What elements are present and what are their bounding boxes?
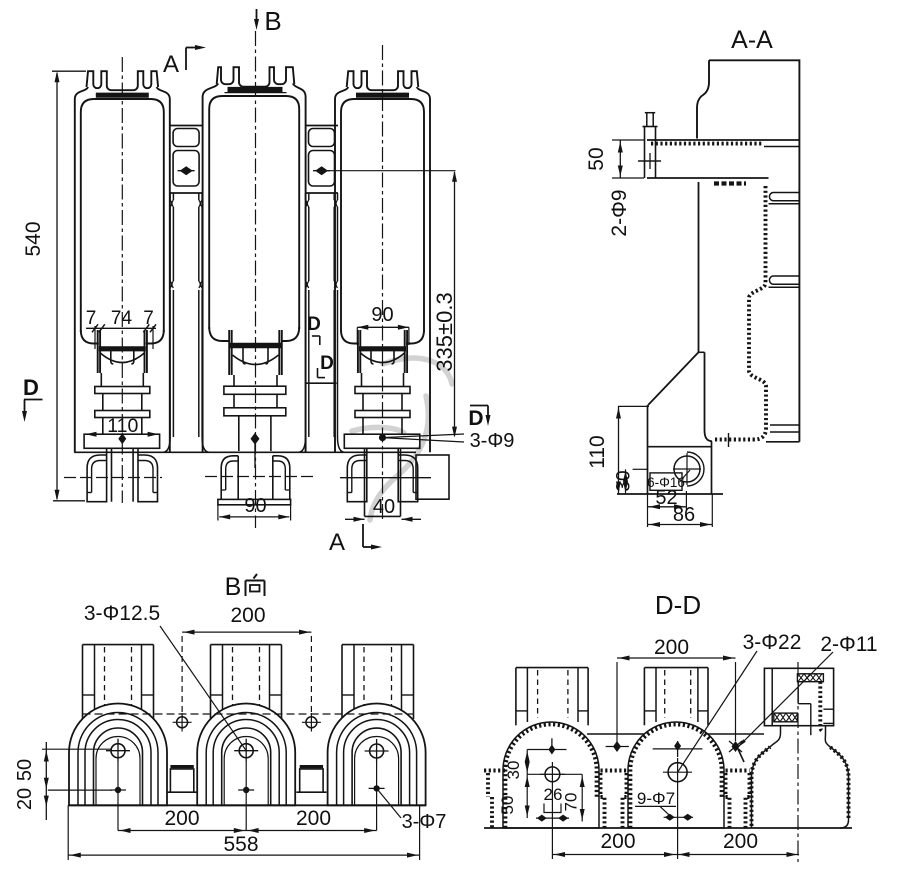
svg-text:335±0.3: 335±0.3 [432,292,457,371]
svg-text:D: D [468,407,483,430]
svg-text:20: 20 [14,788,36,810]
svg-text:30: 30 [504,761,523,780]
svg-text:50: 50 [498,796,517,815]
svg-text:D: D [23,375,39,400]
svg-text:3-Φ7: 3-Φ7 [402,811,447,833]
svg-text:110: 110 [586,435,609,468]
svg-text:50: 50 [14,759,36,781]
svg-text:3-Φ12.5: 3-Φ12.5 [84,602,160,625]
svg-text:200: 200 [723,830,758,853]
svg-text:2-Φ11: 2-Φ11 [820,633,877,656]
svg-text:200: 200 [600,830,635,853]
svg-text:B: B [264,6,281,36]
svg-text:558: 558 [223,833,258,856]
svg-text:200: 200 [164,807,199,830]
svg-text:50: 50 [585,147,608,170]
svg-text:3-Φ22: 3-Φ22 [743,631,802,654]
svg-text:B: B [225,573,242,601]
svg-text:D: D [320,353,334,374]
svg-text:A: A [163,51,179,78]
svg-text:200: 200 [296,807,331,830]
svg-text:200: 200 [230,604,265,627]
svg-text:30: 30 [614,470,635,491]
svg-text:86: 86 [673,504,695,526]
svg-text:D: D [307,314,321,335]
svg-text:200: 200 [654,636,689,659]
svg-text:2-Φ9: 2-Φ9 [608,189,631,236]
svg-text:3-Φ9: 3-Φ9 [470,430,515,452]
svg-text:A-A: A-A [731,26,773,54]
svg-text:A: A [329,529,345,556]
svg-text:70: 70 [562,793,581,812]
svg-text:40: 40 [373,496,395,518]
svg-text:540: 540 [22,221,45,256]
svg-text:D-D: D-D [655,590,701,620]
svg-text:7: 7 [86,308,97,329]
svg-text:7: 7 [143,308,154,329]
svg-text:9-Φ7: 9-Φ7 [637,789,675,808]
